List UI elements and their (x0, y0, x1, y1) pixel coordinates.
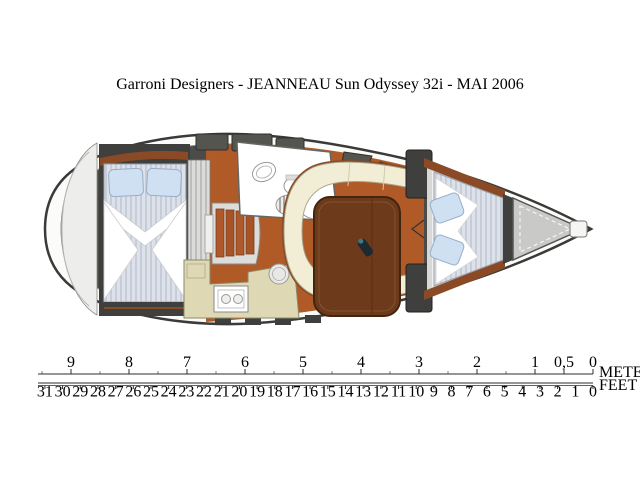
aft-pillow-left (108, 168, 143, 197)
svg-text:13: 13 (355, 384, 371, 401)
svg-text:14: 14 (337, 384, 353, 401)
plan-title: Garroni Designers - JEANNEAU Sun Odyssey… (0, 76, 640, 94)
bow-bulkhead (503, 194, 513, 264)
galley-sink (269, 264, 289, 284)
svg-text:2: 2 (473, 354, 481, 371)
svg-text:1: 1 (531, 354, 539, 371)
boat-floorplan-drawing: 9876543210,50313029282726252423222120191… (0, 0, 640, 480)
companionway-step (226, 210, 234, 256)
svg-text:29: 29 (72, 384, 88, 401)
svg-text:3: 3 (536, 384, 544, 401)
svg-text:0: 0 (589, 384, 597, 401)
bulkhead-wall (427, 166, 432, 292)
boat-plan-page: Garroni Designers - JEANNEAU Sun Odyssey… (0, 0, 640, 480)
scale-ruler: 9876543210,50313029282726252423222120191… (37, 354, 597, 401)
svg-text:28: 28 (90, 384, 106, 401)
svg-text:4: 4 (518, 384, 526, 401)
svg-text:0,5: 0,5 (554, 354, 574, 371)
deck-fitting (305, 315, 321, 323)
svg-text:15: 15 (320, 384, 336, 401)
svg-text:9: 9 (67, 354, 75, 371)
stove-burner (234, 295, 243, 304)
companionway-step (216, 209, 224, 257)
svg-text:6: 6 (241, 354, 249, 371)
companionway-step (246, 212, 254, 254)
svg-text:17: 17 (284, 384, 300, 401)
bow-fitting (570, 221, 587, 237)
svg-text:8: 8 (125, 354, 133, 371)
svg-text:1: 1 (571, 384, 579, 401)
stern-cap (61, 143, 97, 315)
deck-locker (196, 134, 228, 150)
svg-text:25: 25 (143, 384, 159, 401)
svg-text:30: 30 (55, 384, 71, 401)
svg-text:11: 11 (391, 384, 406, 401)
svg-text:26: 26 (125, 384, 141, 401)
svg-text:27: 27 (108, 384, 124, 401)
svg-text:24: 24 (161, 384, 177, 401)
svg-text:6: 6 (483, 384, 491, 401)
forward-cabin (424, 158, 513, 300)
svg-text:7: 7 (465, 384, 473, 401)
svg-text:18: 18 (267, 384, 283, 401)
svg-text:4: 4 (357, 354, 365, 371)
svg-text:0: 0 (589, 354, 597, 371)
aft-pillow-right (146, 168, 181, 197)
svg-text:21: 21 (214, 384, 230, 401)
svg-text:12: 12 (373, 384, 389, 401)
engine-panel (205, 215, 213, 253)
svg-text:19: 19 (249, 384, 265, 401)
svg-text:31: 31 (37, 384, 53, 401)
svg-text:5: 5 (299, 354, 307, 371)
saloon-table (314, 197, 400, 316)
svg-text:9: 9 (430, 384, 438, 401)
svg-text:7: 7 (183, 354, 191, 371)
feet-label: FEET (599, 377, 637, 394)
stove-burner (222, 295, 231, 304)
companionway-step (236, 211, 244, 255)
svg-text:2: 2 (554, 384, 562, 401)
svg-text:22: 22 (196, 384, 212, 401)
svg-text:3: 3 (415, 354, 423, 371)
svg-text:10: 10 (408, 384, 424, 401)
svg-text:20: 20 (231, 384, 247, 401)
svg-text:5: 5 (501, 384, 509, 401)
svg-text:8: 8 (448, 384, 456, 401)
svg-text:23: 23 (178, 384, 194, 401)
svg-text:16: 16 (302, 384, 318, 401)
